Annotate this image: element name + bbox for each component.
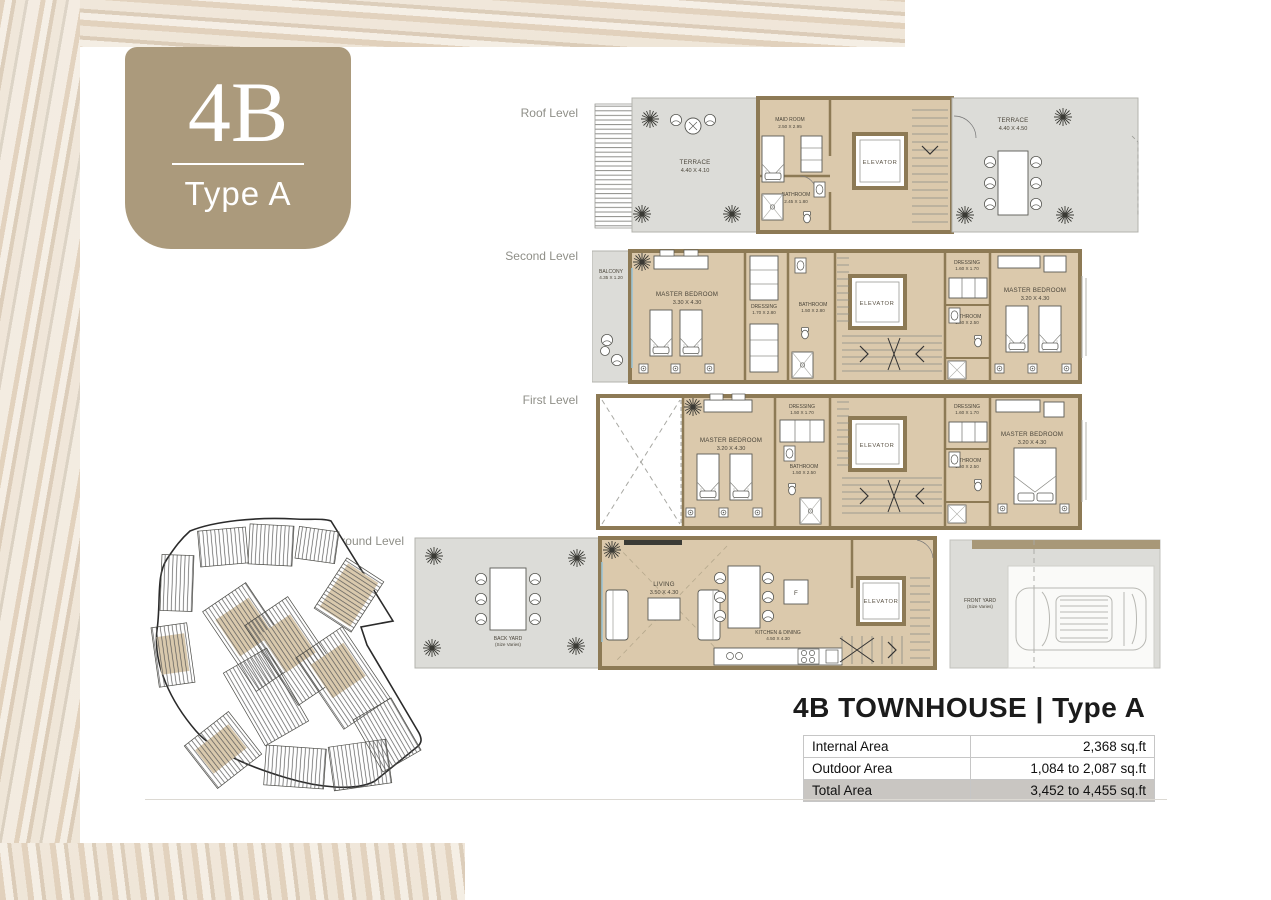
- room-dims: (Size Varies): [967, 604, 993, 609]
- unit-type-label: Type A: [125, 175, 351, 213]
- garage-pad: [1008, 566, 1154, 668]
- page-title: 4B TOWNHOUSE | Type A: [793, 692, 1173, 724]
- room-label: MASTER BEDROOM: [700, 437, 762, 444]
- elevator-label: ELEVATOR: [860, 443, 895, 449]
- room-dims: 4.40 X 4.10: [681, 168, 710, 174]
- area-row-value: 1,084 to 2,087 sq.ft: [971, 758, 1155, 780]
- page-border-texture-left: [0, 0, 80, 900]
- outdoor-dining-table: [490, 568, 526, 630]
- floorplan-first-level: MASTER BEDROOM 3.20 X 4.30 DRESSING 1.50…: [592, 392, 1102, 532]
- room-label: MAID ROOM: [775, 117, 804, 123]
- room-dims: 1.60 X 1.70: [955, 266, 979, 271]
- footer-rule: [145, 799, 1167, 800]
- page-border-texture-top: [0, 0, 905, 47]
- boundary-wall: [972, 540, 1160, 549]
- room-dims: 1.70 X 2.80: [752, 310, 776, 315]
- badge-divider: [172, 163, 304, 165]
- room-dims: 1.50 X 2.80: [801, 308, 825, 313]
- floorplan-ground-level: BACK YARD (Size Varies) LIVING 3.50 X 4.…: [412, 532, 1164, 674]
- room-label: MASTER BEDROOM: [656, 291, 718, 298]
- room-dims: 3.50 X 4.30: [650, 590, 679, 596]
- level-label-second: Second Level: [468, 249, 578, 263]
- area-row-label: Outdoor Area: [804, 758, 971, 780]
- unit-code: 4B: [125, 69, 351, 155]
- site-blocks: [151, 524, 421, 791]
- room-dims: 2.50 X 2.95: [778, 124, 802, 129]
- dining-table: [728, 566, 760, 628]
- area-row-label: Internal Area: [804, 736, 971, 758]
- fridge-label: F: [794, 590, 798, 597]
- table-row: Internal Area 2,368 sq.ft: [804, 736, 1155, 758]
- room-label: MASTER BEDROOM: [1004, 287, 1066, 294]
- dining-table: [998, 151, 1028, 215]
- floorplan-roof-level: TERRACE 4.40 X 4.10 MAID ROOM 2.50 X 2.9…: [592, 96, 1144, 236]
- elevator-label: ELEVATOR: [860, 301, 895, 307]
- room-dims: 1.60 X 1.70: [955, 410, 979, 415]
- area-row-value: 2,368 sq.ft: [971, 736, 1155, 758]
- room-dims: (Size Varies): [495, 642, 521, 647]
- elevator-label: ELEVATOR: [864, 599, 899, 605]
- level-label-roof: Roof Level: [468, 106, 578, 120]
- room-dims: 3.20 X 4.30: [717, 446, 746, 452]
- tv-console: [624, 540, 682, 545]
- level-label-first: First Level: [468, 393, 578, 407]
- sofa: [606, 590, 628, 640]
- room-label: LIVING: [653, 581, 675, 588]
- room-label: MASTER BEDROOM: [1001, 431, 1063, 438]
- roof-terrace-right: [952, 98, 1138, 232]
- room-label: TERRACE: [680, 159, 711, 166]
- elevator-label: ELEVATOR: [863, 160, 898, 166]
- room-dims: 2.45 X 1.80: [784, 199, 808, 204]
- coffee-table: [648, 598, 680, 620]
- floorplan-second-level: BALCONY 4.35 X 1.20 MASTER BEDROOM 3.30 …: [592, 248, 1102, 385]
- room-dims: 3.20 X 4.30: [1021, 296, 1050, 302]
- area-table: Internal Area 2,368 sq.ft Outdoor Area 1…: [803, 735, 1155, 802]
- room-dims: 3.20 X 4.30: [1018, 440, 1047, 446]
- room-dims: 1.50 X 1.70: [790, 410, 814, 415]
- room-dims: 4.40 X 4.50: [999, 126, 1028, 132]
- room-dims: 1.50 X 2.50: [792, 470, 816, 475]
- table-row: Outdoor Area 1,084 to 2,087 sq.ft: [804, 758, 1155, 780]
- room-label: BATHROOM: [782, 192, 811, 198]
- room-label: TERRACE: [998, 117, 1029, 124]
- room-dims: 4.35 X 1.20: [599, 275, 623, 280]
- site-key-plan: [135, 515, 435, 805]
- unit-type-badge: 4B Type A: [125, 47, 351, 249]
- room-dims: 3.30 X 4.30: [673, 300, 702, 306]
- room-dims: 4.50 X 4.30: [766, 636, 790, 641]
- page-border-texture-bottom: [0, 843, 465, 900]
